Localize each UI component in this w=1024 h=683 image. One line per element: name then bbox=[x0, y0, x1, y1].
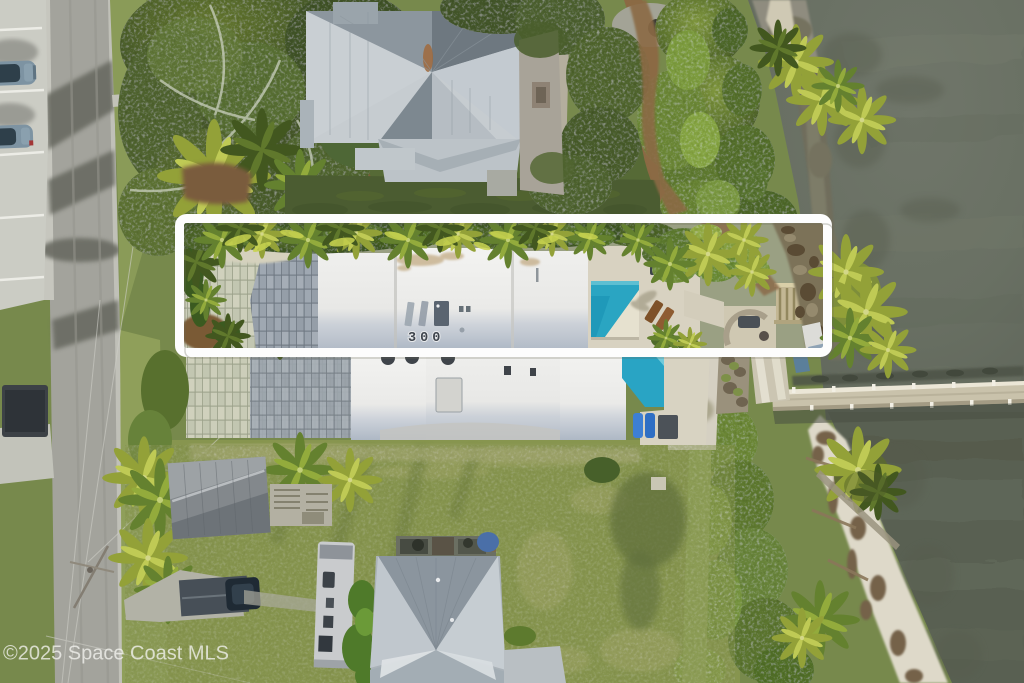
svg-text:©2025 Space Coast MLS: ©2025 Space Coast MLS bbox=[3, 643, 229, 665]
svg-text:300: 300 bbox=[408, 331, 444, 346]
